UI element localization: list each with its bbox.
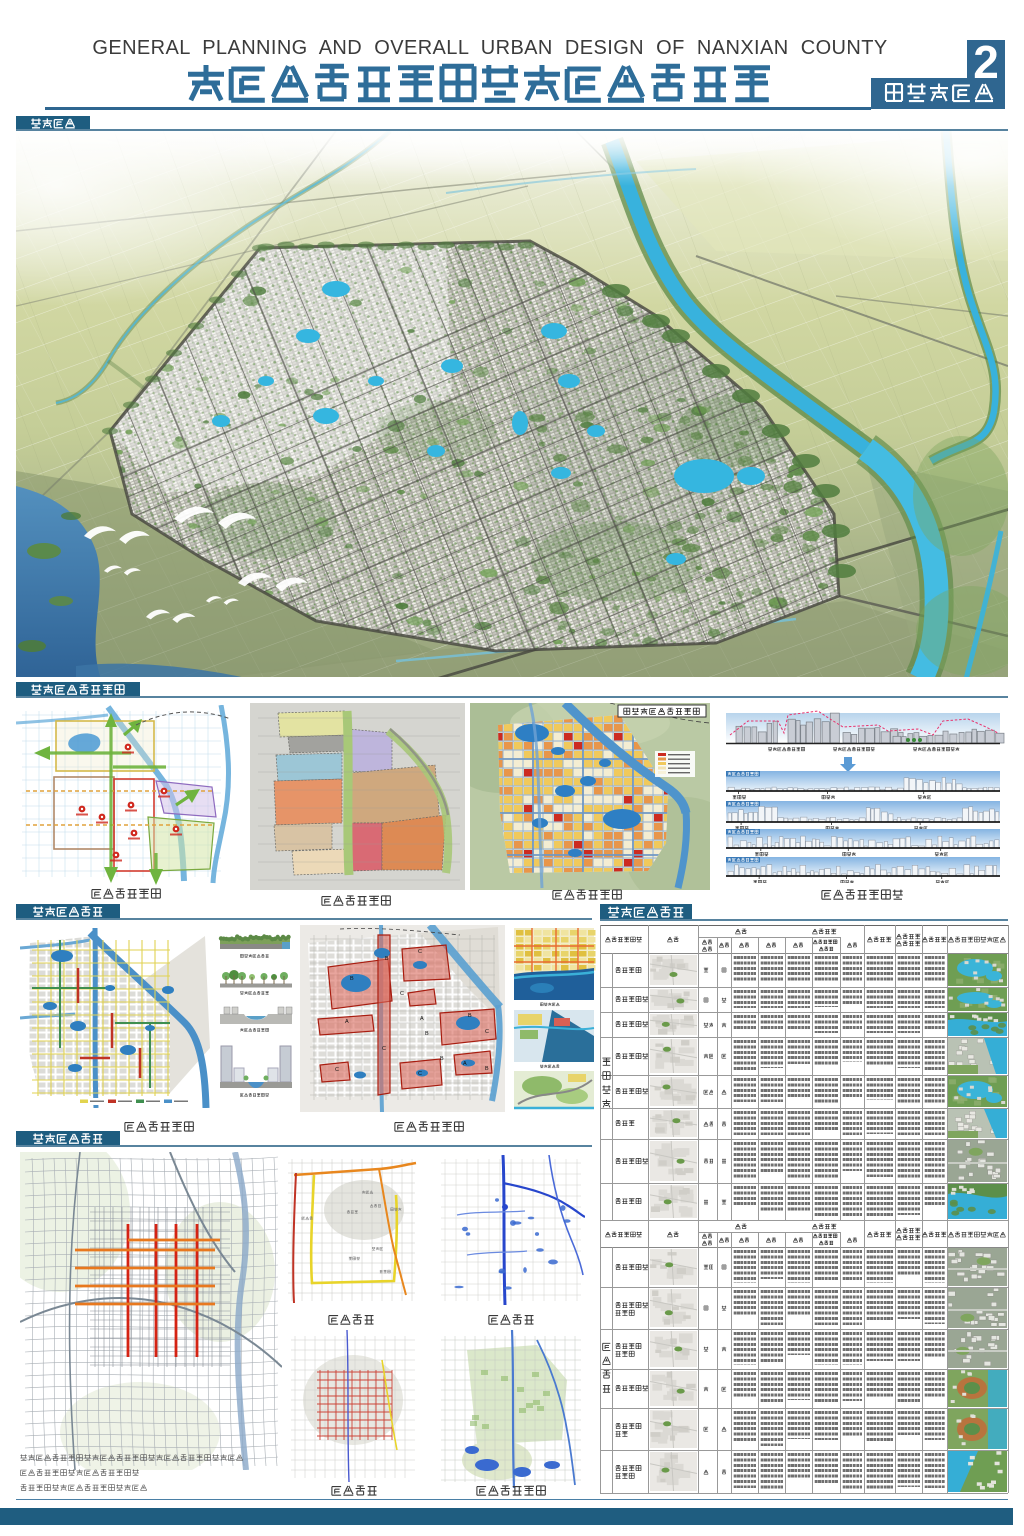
svg-text:C: C: [382, 1046, 386, 1052]
svg-text:B: B: [425, 1031, 429, 1037]
svg-text:A: A: [463, 1061, 467, 1067]
svg-text:C: C: [418, 1071, 422, 1077]
svg-text:C: C: [485, 1029, 489, 1035]
svg-text:B: B: [468, 1013, 472, 1019]
svg-text:B: B: [385, 956, 389, 962]
svg-text:C: C: [418, 949, 422, 955]
svg-text:A: A: [420, 1016, 424, 1022]
svg-text:C: C: [335, 1067, 339, 1073]
svg-text:C: C: [400, 991, 404, 997]
svg-text:B: B: [440, 1056, 444, 1062]
svg-text:B: B: [485, 1066, 489, 1072]
svg-text:A: A: [345, 1019, 349, 1025]
svg-text:B: B: [350, 976, 354, 982]
